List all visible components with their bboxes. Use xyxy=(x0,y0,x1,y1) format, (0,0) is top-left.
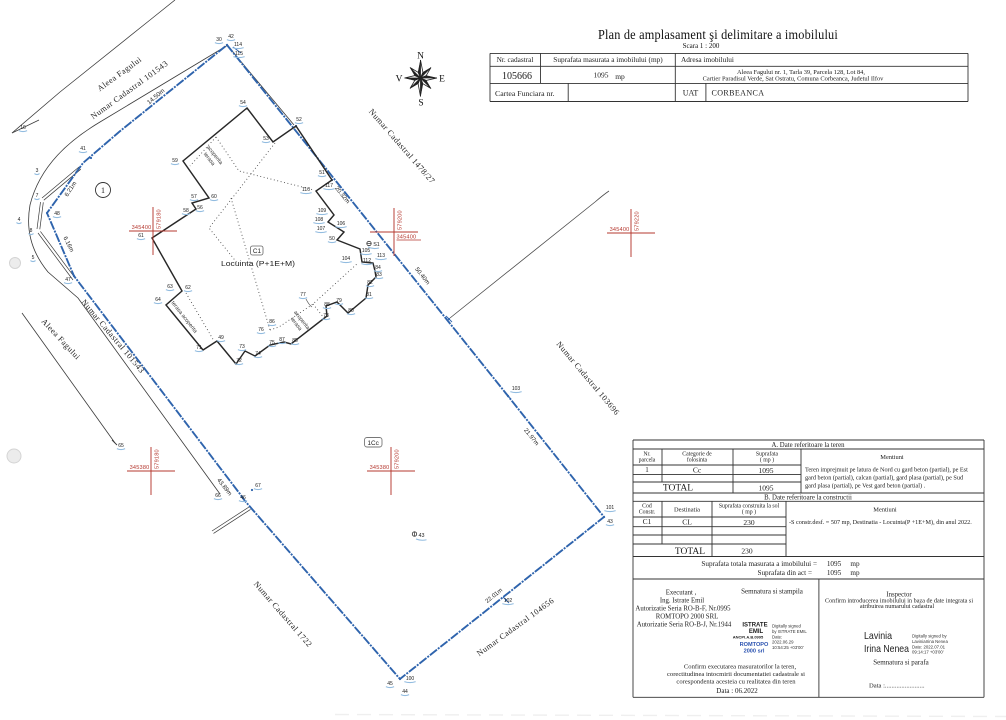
svg-text:21.97m: 21.97m xyxy=(522,428,539,447)
svg-text:Numar Cadastral 101543: Numar Cadastral 101543 xyxy=(79,298,146,375)
svg-text:Digitally signed by: Digitally signed by xyxy=(912,634,947,639)
svg-text:ISTRATE: ISTRATE xyxy=(742,623,767,629)
svg-text:gard beton (partial), calcan (: gard beton (partial), calcan (partial), … xyxy=(805,475,964,482)
svg-text:Numar Cadastral 103696: Numar Cadastral 103696 xyxy=(554,340,621,417)
svg-text:7: 7 xyxy=(36,193,39,199)
svg-text:09:14:17 +03'00': 09:14:17 +03'00' xyxy=(912,650,944,655)
svg-text:1095: 1095 xyxy=(827,560,842,568)
svg-text:43: 43 xyxy=(607,519,613,525)
svg-text:101: 101 xyxy=(606,505,615,511)
svg-text:46: 46 xyxy=(240,495,246,501)
svg-text:14.50m: 14.50m xyxy=(146,88,166,107)
svg-text:50.40m: 50.40m xyxy=(413,267,430,286)
svg-text:parcela: parcela xyxy=(639,458,656,464)
svg-text:76: 76 xyxy=(258,327,264,333)
svg-text:Autorizatie Seria RO-B-F, Nr.0: Autorizatie Seria RO-B-F, Nr.0995 xyxy=(635,605,731,612)
svg-text:A. Date referitoare la teren: A. Date referitoare la teren xyxy=(771,442,845,449)
svg-text:E: E xyxy=(439,75,445,85)
svg-text:Lavinia: Lavinia xyxy=(864,630,892,642)
svg-text:345380: 345380 xyxy=(130,465,150,471)
svg-text:Suprafata din act =: Suprafata din act = xyxy=(757,569,812,577)
svg-text:230: 230 xyxy=(741,547,753,556)
svg-text:345380: 345380 xyxy=(370,465,390,471)
svg-text:57: 57 xyxy=(191,194,197,200)
svg-text:44: 44 xyxy=(402,689,408,695)
svg-text:Cartier Paradisul Verde, Sat O: Cartier Paradisul Verde, Sat Ostratu, Co… xyxy=(703,76,885,83)
svg-text:58: 58 xyxy=(183,208,189,214)
svg-text:3: 3 xyxy=(36,168,39,174)
svg-text:82: 82 xyxy=(367,280,373,286)
svg-text:78: 78 xyxy=(323,313,329,319)
svg-text:110: 110 xyxy=(302,187,310,193)
svg-text:mp: mp xyxy=(615,72,625,81)
svg-text:Teren imprejmuit pe latura de: Teren imprejmuit pe latura de Nord cu ga… xyxy=(805,467,968,474)
svg-text:CL: CL xyxy=(682,518,692,527)
svg-text:64: 64 xyxy=(155,297,161,303)
svg-text:47: 47 xyxy=(65,277,71,283)
svg-text:1095: 1095 xyxy=(759,484,774,493)
svg-text:Data :........................: Data :........................ xyxy=(869,683,925,690)
svg-text:230: 230 xyxy=(743,518,755,527)
svg-text:4: 4 xyxy=(18,217,21,223)
svg-text:30: 30 xyxy=(216,37,222,43)
svg-text:Locuinta (P+1E+M): Locuinta (P+1E+M) xyxy=(221,261,295,268)
svg-text:Numar Cadastral 1478/27: Numar Cadastral 1478/27 xyxy=(367,107,437,185)
svg-text:51: 51 xyxy=(319,170,325,176)
svg-text:1095: 1095 xyxy=(827,569,842,577)
svg-text:atribuirea numarului cadastral: atribuirea numarului cadastral xyxy=(860,603,934,610)
svg-text:( mp ): ( mp ) xyxy=(742,509,756,516)
svg-text:75: 75 xyxy=(269,340,275,346)
svg-text:gard plasa (partial), pe Vest: gard plasa (partial), pe Vest gard beton… xyxy=(805,483,926,490)
svg-text:66: 66 xyxy=(215,493,221,499)
svg-text:Plan de amplasament şi delimit: Plan de amplasament şi delimitare a imob… xyxy=(598,27,838,42)
svg-text:43: 43 xyxy=(419,533,425,539)
svg-text:Mentiuni: Mentiuni xyxy=(880,454,904,461)
svg-text:345400: 345400 xyxy=(397,235,417,241)
svg-text:-S constr.desf. = 507 mp, Dest: -S constr.desf. = 507 mp, Destinatia - L… xyxy=(789,519,972,526)
svg-text:Ing. Istrate Emil: Ing. Istrate Emil xyxy=(660,598,704,605)
svg-text:71: 71 xyxy=(196,345,202,351)
svg-text:87: 87 xyxy=(279,337,285,343)
svg-text:Autorizatie Seria RO-B-J, Nr.1: Autorizatie Seria RO-B-J, Nr.1944 xyxy=(637,622,732,629)
svg-text:100: 100 xyxy=(406,676,415,682)
svg-text:S: S xyxy=(418,99,423,109)
svg-text:108: 108 xyxy=(315,217,324,223)
svg-text:1095: 1095 xyxy=(594,71,609,80)
svg-text:115: 115 xyxy=(235,51,243,57)
svg-text:345400: 345400 xyxy=(132,225,152,231)
svg-text:104: 104 xyxy=(342,256,351,262)
svg-text:2000 srl: 2000 srl xyxy=(744,648,765,654)
svg-text:Semnatura si parafa: Semnatura si parafa xyxy=(873,659,929,667)
svg-text:106: 106 xyxy=(337,221,346,227)
svg-text:1: 1 xyxy=(645,466,649,474)
svg-text:60: 60 xyxy=(211,194,217,200)
svg-text:49: 49 xyxy=(218,335,224,341)
svg-text:Aleea Fagului: Aleea Fagului xyxy=(40,317,83,362)
svg-text:Date: 2022.07.01: Date: 2022.07.01 xyxy=(912,644,946,649)
svg-text:Destinatia: Destinatia xyxy=(674,507,700,514)
svg-text:79: 79 xyxy=(336,298,342,304)
svg-text:Adresa imobilului: Adresa imobilului xyxy=(681,55,734,64)
svg-text:579200: 579200 xyxy=(394,449,400,469)
svg-text:CORBEANCA: CORBEANCA xyxy=(712,89,765,98)
svg-text:22.01m: 22.01m xyxy=(485,588,504,605)
svg-text:80: 80 xyxy=(348,308,354,314)
svg-text:1095: 1095 xyxy=(759,466,774,475)
svg-text:by ISTRATE EMIL: by ISTRATE EMIL xyxy=(772,629,807,634)
svg-text:109: 109 xyxy=(318,208,327,214)
svg-text:86: 86 xyxy=(269,319,275,325)
svg-text:UAT: UAT xyxy=(683,89,699,98)
svg-text:corectitudinea intocmirii docu: corectitudinea intocmirii documentatiei … xyxy=(667,671,805,678)
svg-text:N: N xyxy=(417,52,424,62)
svg-text:579200: 579200 xyxy=(397,210,403,230)
svg-text:10:54:25 +03'00': 10:54:25 +03'00' xyxy=(772,645,804,650)
svg-text:579180: 579180 xyxy=(156,209,162,229)
svg-text:113: 113 xyxy=(377,253,385,259)
svg-text:Suprafata: Suprafata xyxy=(756,451,779,458)
svg-text:579220: 579220 xyxy=(634,211,640,231)
svg-text:Data : 06.2022: Data : 06.2022 xyxy=(716,687,758,695)
svg-text:83: 83 xyxy=(376,272,382,278)
svg-text:16: 16 xyxy=(20,125,26,131)
svg-text:Suprafata masurata a imobilulu: Suprafata masurata a imobilului (mp) xyxy=(553,55,663,64)
svg-text:8: 8 xyxy=(30,228,33,234)
svg-text:Cc: Cc xyxy=(693,466,702,475)
svg-text:88: 88 xyxy=(324,302,330,308)
svg-text:C1: C1 xyxy=(643,517,652,526)
svg-text:74: 74 xyxy=(255,351,261,357)
svg-text:53: 53 xyxy=(263,136,269,142)
svg-text:ROMTOPO 2000 SRL: ROMTOPO 2000 SRL xyxy=(656,613,719,620)
svg-text:V: V xyxy=(396,75,403,85)
svg-text:Mentiuni: Mentiuni xyxy=(873,507,897,514)
svg-text:B. Date referitoare la constru: B. Date referitoare la constructii xyxy=(764,494,852,501)
svg-text:41: 41 xyxy=(80,146,86,152)
svg-text:50: 50 xyxy=(329,236,335,242)
svg-text:Confirm executarea masuratoril: Confirm executarea masuratorilor la tere… xyxy=(684,664,797,671)
svg-text:LaviniaIrina Nenea: LaviniaIrina Nenea xyxy=(912,639,948,644)
svg-text:114: 114 xyxy=(234,42,242,48)
svg-text:77: 77 xyxy=(300,292,306,298)
svg-text:Suprafata construita la sol: Suprafata construita la sol xyxy=(719,503,780,510)
svg-text:59: 59 xyxy=(172,158,178,164)
svg-text:2022.06.29: 2022.06.29 xyxy=(772,640,794,645)
svg-text:C1: C1 xyxy=(253,248,262,255)
svg-text:52: 52 xyxy=(296,117,302,123)
svg-text:Executant ,: Executant , xyxy=(666,590,697,597)
svg-text:81: 81 xyxy=(366,292,372,298)
svg-text:84: 84 xyxy=(375,265,381,271)
svg-text:Nr. cadastral: Nr. cadastral xyxy=(497,55,534,64)
svg-text:61: 61 xyxy=(138,233,144,239)
svg-text:Cartea Funciara nr.: Cartea Funciara nr. xyxy=(495,89,555,98)
svg-text:56: 56 xyxy=(197,205,203,211)
svg-text:corespondenta acesteia cu real: corespondenta acesteia cu realitatea din… xyxy=(676,679,796,686)
svg-text:mp: mp xyxy=(850,560,860,568)
svg-text:73: 73 xyxy=(239,344,245,350)
svg-text:Suprafata totala masurata a im: Suprafata totala masurata a imobilului = xyxy=(701,560,817,568)
svg-text:117: 117 xyxy=(325,183,333,189)
svg-text:Constr.: Constr. xyxy=(639,510,656,516)
svg-text:102: 102 xyxy=(504,598,513,604)
svg-text:85: 85 xyxy=(292,338,298,344)
svg-text:103: 103 xyxy=(512,386,521,392)
svg-text:105666: 105666 xyxy=(502,71,532,82)
svg-text:mp: mp xyxy=(850,569,860,577)
svg-text:579180: 579180 xyxy=(154,449,160,469)
svg-text:terasa acoperita: terasa acoperita xyxy=(170,300,199,334)
svg-text:TOTAL: TOTAL xyxy=(663,484,693,494)
svg-text:112: 112 xyxy=(363,258,371,264)
svg-text:1: 1 xyxy=(101,186,105,195)
svg-text:345400: 345400 xyxy=(610,227,630,233)
svg-text:5: 5 xyxy=(32,255,35,261)
svg-text:Scara 1 : 200: Scara 1 : 200 xyxy=(683,42,720,50)
svg-text:S1: S1 xyxy=(373,242,380,248)
svg-text:48: 48 xyxy=(54,211,60,217)
svg-text:72: 72 xyxy=(236,358,242,364)
svg-text:62: 62 xyxy=(185,285,191,291)
svg-text:6.21m: 6.21m xyxy=(64,181,78,198)
svg-text:ANCPI.A.B.0995: ANCPI.A.B.0995 xyxy=(733,635,764,640)
svg-text:Digitally signed: Digitally signed xyxy=(772,624,802,629)
svg-text:Semnatura si stampila: Semnatura si stampila xyxy=(741,588,804,596)
svg-text:1Cc: 1Cc xyxy=(368,440,380,447)
svg-text:ROMTOPO: ROMTOPO xyxy=(740,642,769,648)
svg-text:67: 67 xyxy=(255,483,261,489)
svg-text:Numar Cadastral 1722: Numar Cadastral 1722 xyxy=(252,580,314,649)
svg-text:54: 54 xyxy=(240,100,246,106)
svg-text:Irina Nenea: Irina Nenea xyxy=(864,643,909,655)
svg-text:folosinta: folosinta xyxy=(687,457,708,464)
svg-text:45: 45 xyxy=(387,681,393,687)
svg-text:Numar Cadastral 104656: Numar Cadastral 104656 xyxy=(475,596,556,658)
svg-text:63: 63 xyxy=(167,284,173,290)
svg-text:105: 105 xyxy=(362,248,371,254)
svg-text:TOTAL: TOTAL xyxy=(675,547,705,557)
svg-text:( mp ): ( mp ) xyxy=(760,457,774,464)
svg-text:107: 107 xyxy=(317,226,326,232)
svg-text:42: 42 xyxy=(228,34,234,40)
svg-text:65: 65 xyxy=(118,443,124,449)
